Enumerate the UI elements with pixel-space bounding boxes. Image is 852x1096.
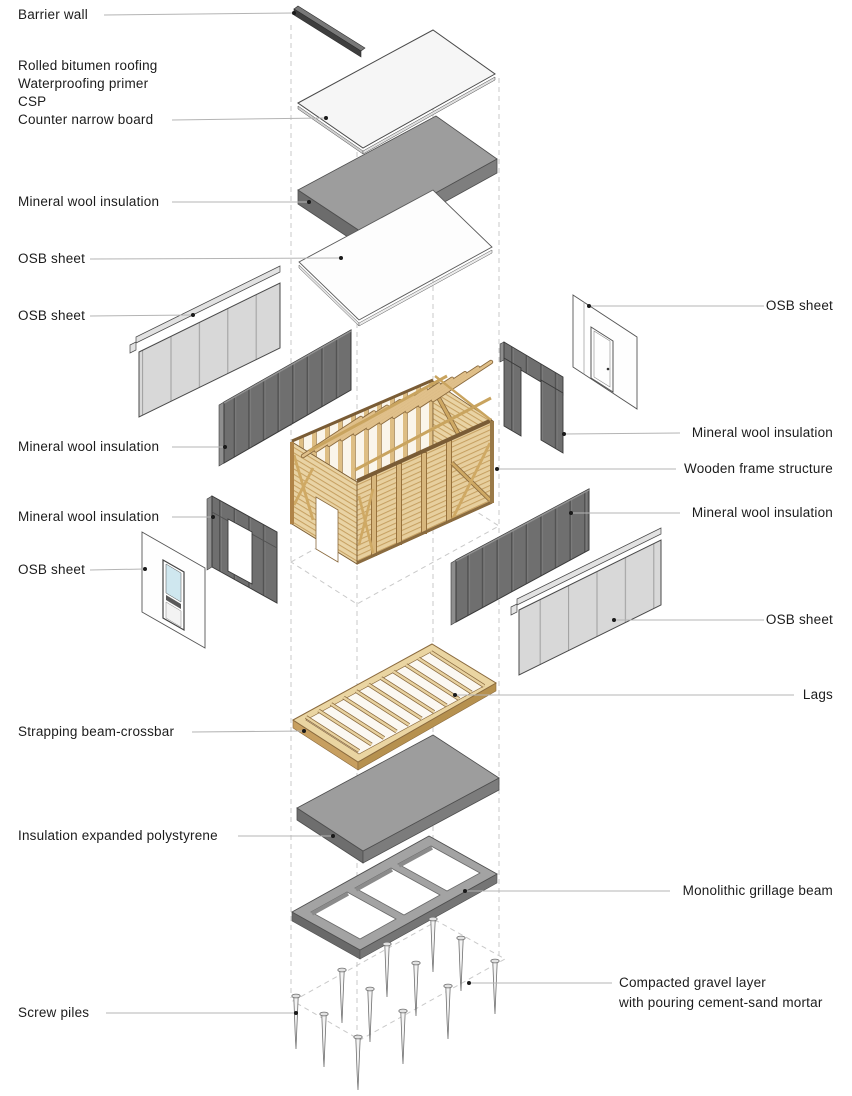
- label-mineral-wool-se: Mineral wool insulation: [692, 504, 833, 522]
- label-waterproofing-primer: Waterproofing primer: [18, 75, 148, 93]
- barrier-wall-bar: [294, 6, 365, 57]
- label-mineral-wool-door: Mineral wool insulation: [692, 424, 833, 442]
- mineral-wool-wall-door: [500, 342, 563, 453]
- exploded-axonometric-diagram: Barrier wall Rolled bitumen roofing Wate…: [0, 0, 852, 1096]
- osb-panel-window: [142, 532, 205, 648]
- label-counter-narrow-board: Counter narrow board: [18, 111, 153, 129]
- label-osb-roof: OSB sheet: [18, 250, 85, 268]
- label-gravel-line1: Compacted gravel layer: [619, 974, 766, 992]
- label-osb-end: OSB sheet: [18, 561, 85, 579]
- screw-piles: [292, 917, 499, 1090]
- label-grillage: Monolithic grillage beam: [683, 882, 833, 900]
- label-osb-wall-nw: OSB sheet: [18, 307, 85, 325]
- lags-floor-frame: [293, 644, 496, 770]
- label-barrier-wall: Barrier wall: [18, 6, 88, 24]
- label-mineral-wool-nw: Mineral wool insulation: [18, 438, 159, 456]
- door-handle: [607, 368, 610, 371]
- grillage-beam: [292, 836, 497, 959]
- label-mineral-wool-roof: Mineral wool insulation: [18, 193, 159, 211]
- label-wooden-frame: Wooden frame structure: [684, 460, 833, 478]
- label-insulation-eps: Insulation expanded polystyrene: [18, 827, 218, 845]
- label-gravel-line2: with pouring cement-sand mortar: [619, 994, 823, 1012]
- label-mineral-wool-end: Mineral wool insulation: [18, 508, 159, 526]
- label-rolled-bitumen-roofing: Rolled bitumen roofing: [18, 57, 157, 75]
- mineral-wool-wall-window: [207, 496, 277, 603]
- diagram-canvas: [0, 0, 852, 1096]
- label-osb-door: OSB sheet: [766, 297, 833, 315]
- roofing-panel: [298, 30, 495, 154]
- label-osb-se: OSB sheet: [766, 611, 833, 629]
- label-strapping-beam: Strapping beam-crossbar: [18, 723, 174, 741]
- label-lags: Lags: [803, 686, 833, 704]
- label-csp: CSP: [18, 93, 46, 111]
- label-screw-piles: Screw piles: [18, 1004, 89, 1022]
- osb-panel-door: [573, 295, 637, 409]
- eps-insulation-slab: [297, 735, 499, 863]
